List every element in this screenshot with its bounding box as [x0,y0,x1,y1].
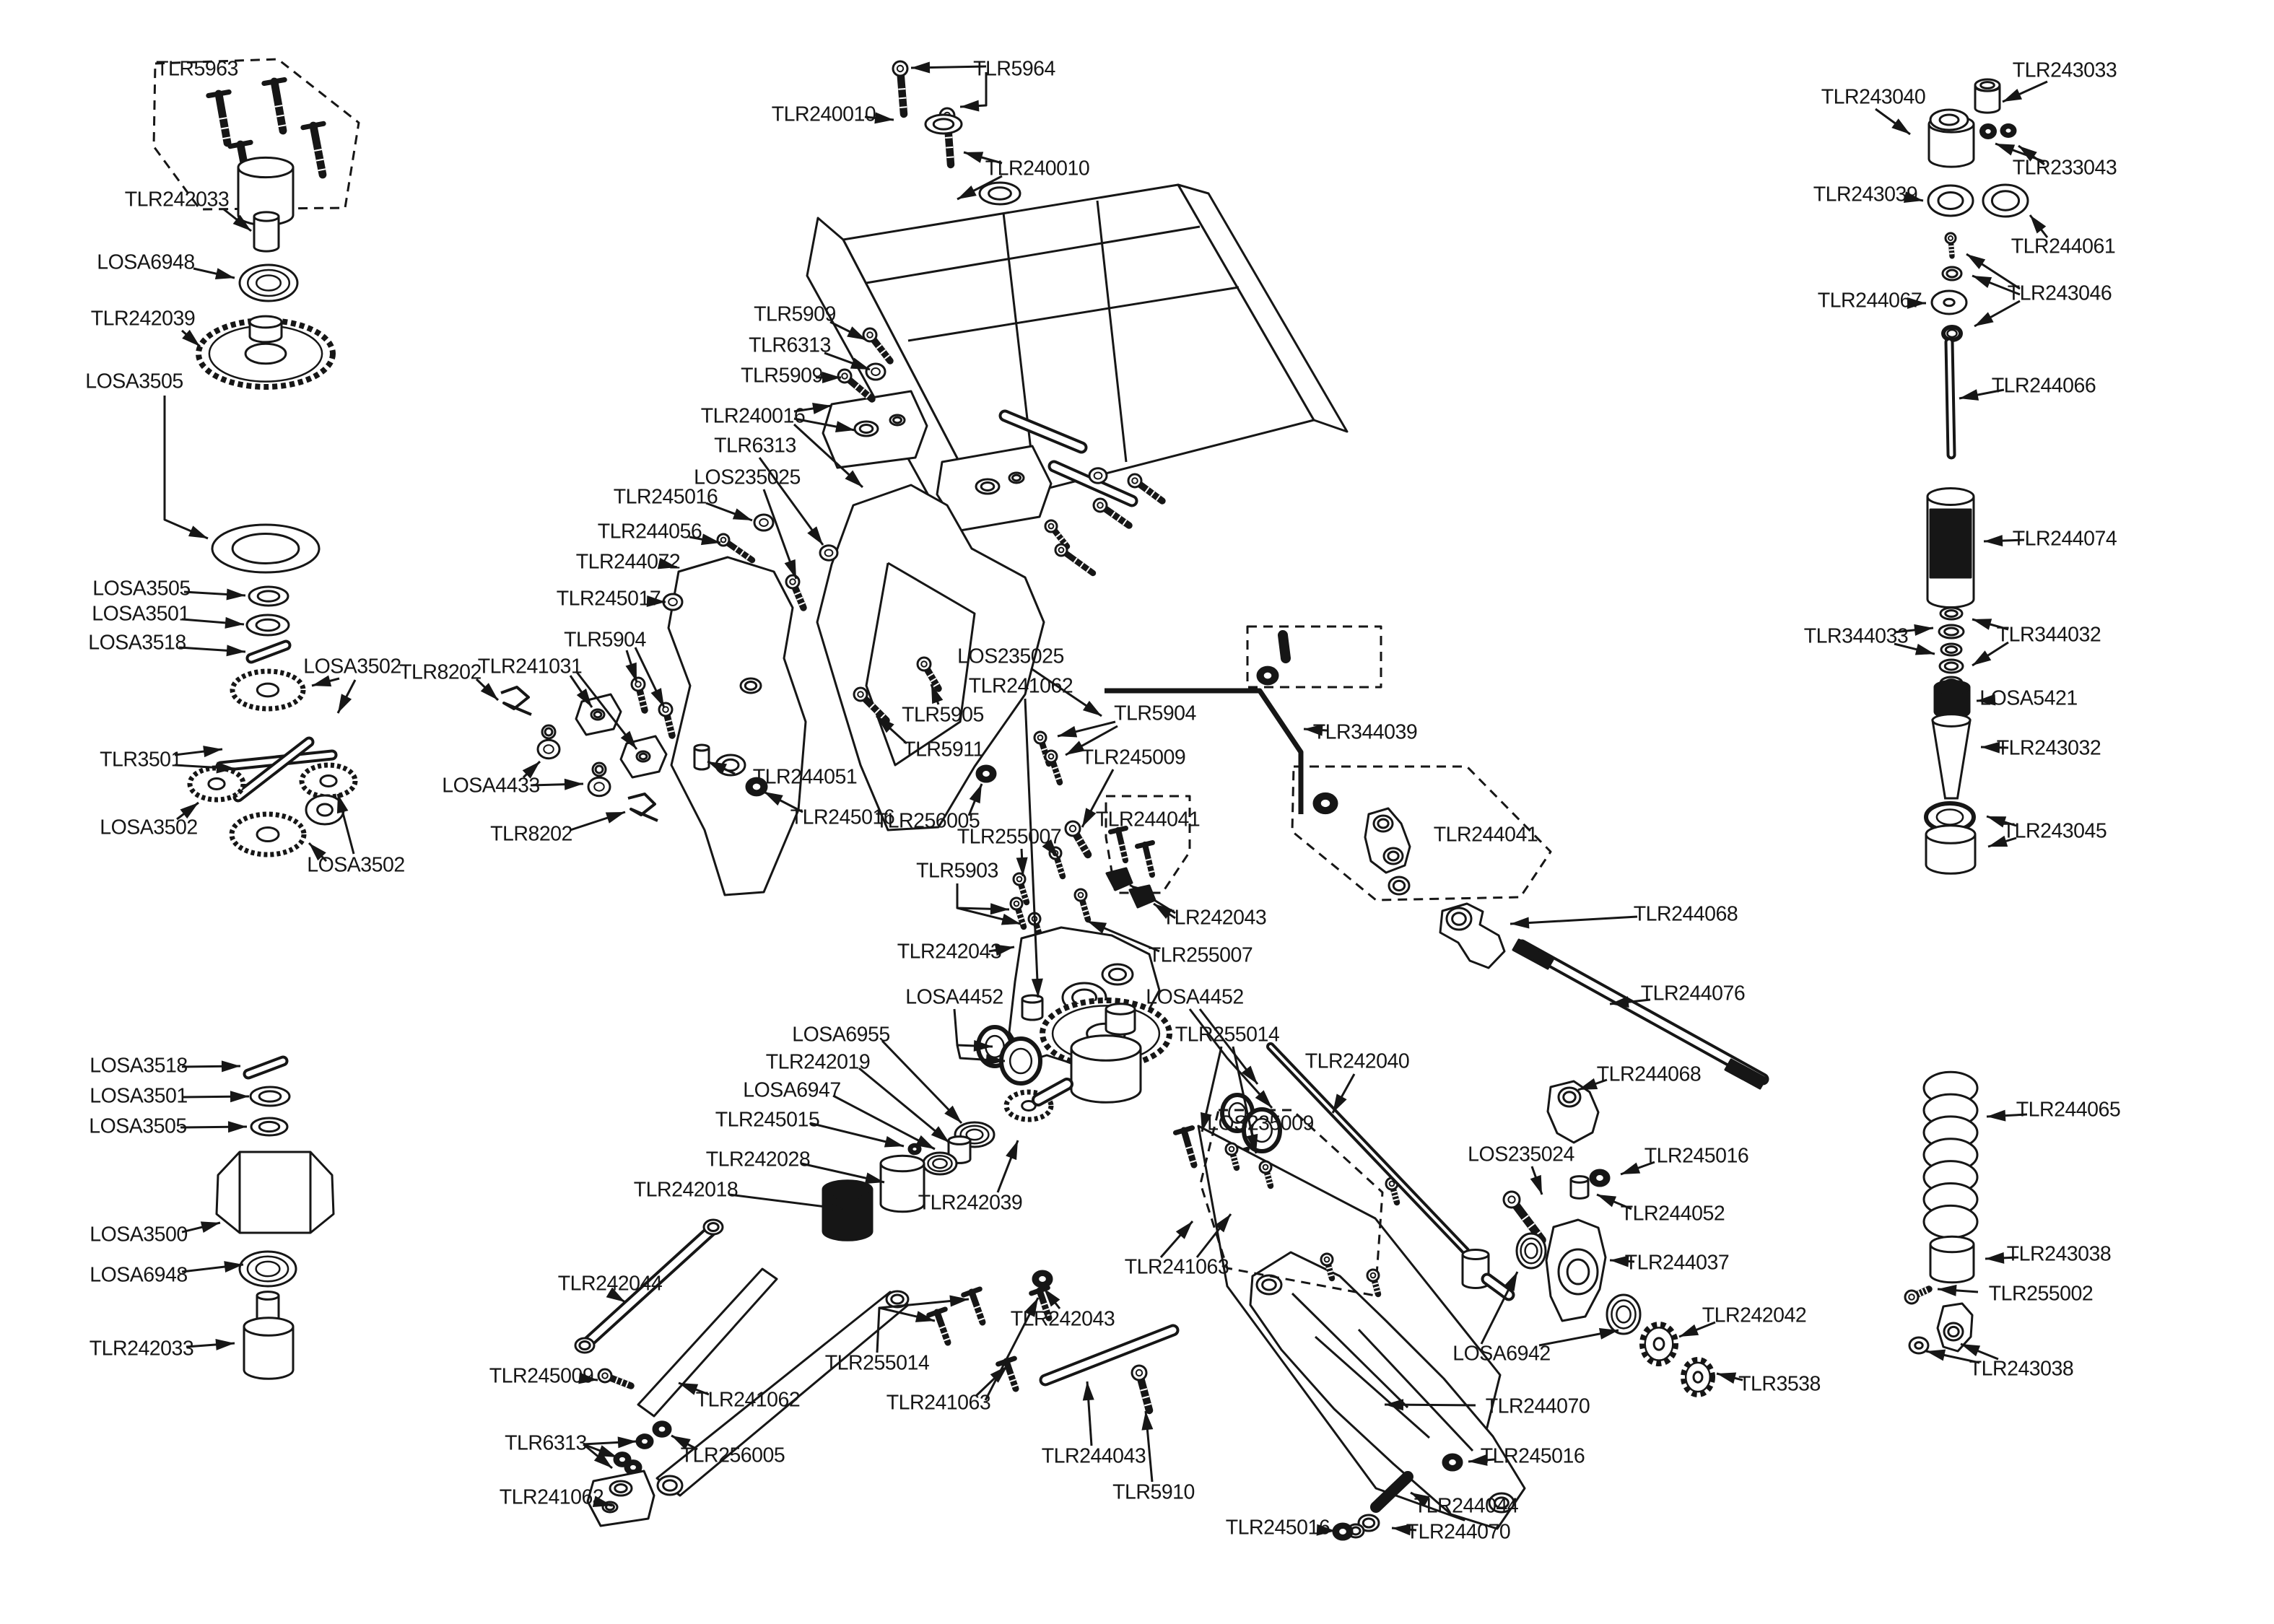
bevel-gear-bore [321,776,336,787]
flathead-screw-head [1175,1128,1192,1133]
nut-bore [871,368,880,375]
leader-arrowhead [618,1436,637,1448]
part-number-label: TLR244068 [1597,1063,1701,1086]
washer-ring-inner [1948,1327,1959,1336]
part-number-label: TLR243045 [2003,820,2107,843]
part-number-label: TLR5909 [741,364,823,388]
part-number-label: TLR344032 [1997,624,2101,647]
cylinder-top [244,1318,293,1335]
part-body [668,557,806,895]
bearing-bore [933,1159,946,1169]
washer-ring-inner [594,712,601,717]
part-number-label: TLR241063 [886,1392,990,1415]
part-number-label: TLR244070 [1486,1395,1590,1418]
leader-arrowhead [2003,89,2022,102]
leader-arrowhead [1006,1140,1018,1160]
washer-ring-inner [1945,628,1959,635]
leader-arrowhead [1530,1175,1542,1195]
leader-arrowhead [1972,619,1992,629]
cylinder-top [238,157,293,177]
washer-ring-inner [1393,881,1404,890]
washer-ring-inner [1263,1280,1276,1290]
part-number-label: LOSA6942 [1452,1343,1550,1366]
leader-arrowhead [884,1136,904,1148]
part-number-label: TLR6313 [749,334,831,357]
part-number-label: TLR242033 [90,1337,193,1361]
part-number-label: TLR244061 [2011,235,2115,258]
nut-bore [1094,472,1102,479]
part-number-label: TLR5903 [916,860,998,883]
part-number-label: TLR241031 [478,655,582,678]
bevel-gear-bore [257,684,278,697]
leader-arrowhead [1621,1163,1640,1174]
leader-arrowhead [1083,701,1102,716]
part-number-label: TLR344039 [1313,721,1417,744]
nut-bore [1338,1528,1347,1535]
washer-ring-inner [615,1485,627,1493]
cylinder-top [881,1156,924,1171]
washer-ring-inner [663,1480,677,1490]
screw-head [1045,751,1057,762]
cylinder-top [1571,1176,1588,1183]
washer-ring-inner [708,1223,718,1231]
part-number-label: TLR242040 [1305,1050,1409,1073]
part-number-label: TLR244068 [1634,903,1738,926]
part-number-label: TLR240010 [985,157,1089,180]
washer-ring-inner [232,534,299,564]
washer-ring-inner [894,417,902,423]
leader-arrowhead [1578,1078,1598,1090]
part-number-label: LOSA3518 [88,632,186,655]
leader-arrowhead [1597,1195,1616,1207]
cone-boot [1933,720,1970,798]
washer-ring-inner [580,1342,590,1350]
screw-head [1128,474,1141,487]
leader-arrowhead [807,526,823,545]
leader-arrowhead [215,268,235,279]
nut-bore [630,1464,637,1470]
screw-thread [946,147,953,148]
screw-head [1075,889,1086,901]
part-number-label: TLR8202 [490,823,572,846]
part-number-label: TLR256005 [681,1444,785,1467]
screw-head [1226,1143,1237,1155]
cylinder-top [1106,1004,1135,1014]
washer-ring-inner [860,425,873,433]
part-number-label: LOSA3501 [92,603,189,626]
part-body [1107,868,1132,890]
part-number-label: TLR245017 [557,588,661,611]
nut-bore [2005,128,2012,134]
part-number-label: LOSA3502 [100,816,197,839]
washer-ring-inner [318,804,333,816]
cylinder-top [1935,681,1969,693]
part-number-label: TLR242018 [634,1179,738,1202]
part-number-label: LOS235009 [1207,1112,1314,1135]
leader-arrowhead [2030,215,2046,233]
leader-arrowhead [957,185,977,199]
screw-head [598,1369,611,1382]
cylinder-top [254,212,279,221]
leader-arrowhead [625,663,637,682]
cylinder-top [1930,1236,1974,1252]
part-number-label: TLR242033 [125,188,229,211]
nut-bore [594,782,604,790]
part-body [501,687,531,715]
screw-head [659,703,672,716]
part-number-label: TLR244044 [1414,1495,1519,1518]
cylinder-top [1022,995,1042,1003]
leader-arrowhead [201,1221,220,1233]
part-number-label: LOSA6948 [90,1264,187,1287]
washer-ring-inner [1946,647,1956,653]
spring-coil [1924,1205,1977,1237]
cylinder-top [823,1181,872,1198]
washer-ring-inner [1452,913,1466,925]
part-number-label: TLR255007 [1149,944,1253,967]
part-number-label: TLR6313 [505,1432,587,1455]
part-number-label: TLR242039 [918,1192,1022,1215]
part-number-label: TLR245009 [1081,746,1185,769]
washer-ring-inner [1363,1519,1374,1527]
washer-ring-inner [1938,192,1963,209]
part-number-label: TLR242042 [1702,1304,1806,1327]
screw-thread [945,137,952,138]
leader-arrowhead [1717,1373,1736,1384]
part-number-label: TLR242044 [558,1272,663,1296]
screw-thread [899,98,906,99]
leader-arrowhead [651,688,664,707]
screw-thread [1948,246,1953,247]
part-number-label: TLR5911 [903,738,984,761]
washer-ring-inner [640,754,647,759]
part-number-label: LOSA3502 [303,655,401,678]
part-number-label: TLR5964 [973,58,1055,81]
part-number-label: TLR242039 [91,307,195,331]
part-number-label: LOSA3505 [89,1115,186,1138]
bearing-bore [1616,1306,1630,1323]
part-number-label: TLR5963 [156,58,238,81]
washer-ring-inner [981,483,994,491]
leader-arrowhead [1972,276,1992,288]
screw-head [786,575,799,588]
part-number-label: TLR243040 [1821,86,1925,109]
part-number-label: LOSA4433 [442,774,539,798]
leader-arrowhead [1333,1093,1347,1113]
part-number-label: TLR243039 [1813,183,1917,206]
part-number-label: TLR244052 [1621,1202,1725,1226]
washer-ring-inner [1013,475,1021,481]
screw-head [1132,1366,1146,1380]
part-number-label: TLR233043 [2013,157,2117,180]
flathead-screw-head [964,1289,980,1295]
washer-ring-inner [1944,299,1954,306]
screw-head [1055,544,1067,556]
part-number-label: LOS235025 [957,645,1064,668]
leader-line [165,396,208,538]
part-number-label: TLR244065 [2016,1099,2120,1122]
cylinder-top [1926,826,1975,843]
screw-head [718,534,729,546]
cone-top [1933,715,1970,727]
cylinder-top [1463,1250,1489,1260]
leader-line [1510,917,1637,924]
washer-ring-inner [545,728,552,735]
part-number-label: LOSA6947 [743,1079,840,1102]
part-number-label: TLR242043 [1162,907,1266,930]
part-number-label: TLR5904 [1114,702,1196,725]
leader-arrowhead [1082,808,1096,827]
cylinder-top [257,1292,279,1300]
washer-ring-inner [745,682,756,690]
part-number-label: TLR245016 [1644,1145,1748,1168]
leader-arrowhead [1974,312,1994,326]
pin-fill [1949,342,1951,455]
bevel-gear-bore [209,779,225,790]
nut-bore [1320,799,1330,808]
part-number-label: LOSA3505 [92,577,190,601]
part-number-label: TLR243033 [2013,59,2117,82]
part-number-label: TLR244037 [1625,1252,1729,1275]
screw-head [1504,1192,1520,1208]
leader-arrowhead [1987,1110,2005,1122]
bevel-gear-bore [257,827,279,841]
leader-arrowhead [1058,726,1077,738]
leader-arrowhead [230,1091,249,1102]
washer-ring-inner [1915,1343,1922,1349]
part-body [1930,510,1971,577]
bearing-bore [1525,1244,1538,1258]
screw-head [918,658,931,671]
exploded-parts-diagram: TLR5963TLR242033LOSA6948TLR242039LOSA350… [0,0,2274,1624]
part-number-label: TLR244072 [576,551,680,574]
part-number-label: TLR245015 [715,1109,819,1132]
nut-bore [544,745,554,753]
washer-ring-inner [1981,82,1995,89]
nut-bore [1448,1459,1457,1466]
part-number-label: TLR245016 [614,486,718,509]
part-number-label: LOSA6955 [792,1023,889,1047]
part-number-label: TLR243046 [2008,282,2112,305]
part-number-label: TLR3538 [1738,1373,1821,1396]
leader-arrowhead [949,1296,969,1307]
pin-outline [1283,635,1286,658]
leader-arrowhead [338,694,352,713]
part-number-label: TLR255002 [1989,1283,2093,1306]
gear-hub [1654,1338,1664,1350]
o-ring [1001,1039,1040,1083]
screw-head [1094,499,1107,512]
screw-thread [1949,250,1954,250]
washer-ring-inner [989,188,1011,200]
part-number-label: TLR242043 [1011,1308,1115,1331]
leader-arrowhead [1141,1411,1153,1431]
flathead-screw-head [1137,842,1152,846]
part-number-label: TLR244041 [1096,808,1200,831]
part-number-label: TLR241062 [969,675,1073,698]
part-number-label: TLR243038 [1969,1358,2073,1381]
part-number-label: TLR5910 [1112,1481,1195,1504]
screw-thread [1949,253,1954,254]
screw-head [1367,1270,1379,1281]
part-number-label: TLR245009 [489,1365,593,1388]
cylinder-top [250,316,282,328]
part-number-label: LOSA3518 [90,1055,187,1078]
screw-thread [899,107,907,108]
part-number-label: TLR255007 [957,826,1061,849]
cylinder-top [694,745,709,751]
washer-ring-inner [1940,115,1959,125]
washer-ring-inner [1567,1260,1589,1284]
screw-thread [946,157,954,157]
leader-arrowhead [225,617,244,629]
washer-ring-inner [933,119,954,129]
nut-bore [825,549,833,556]
part-number-label: TLR242019 [766,1051,870,1074]
exploded-parts-diagram-page: TLR5963TLR242033LOSA6948TLR242039LOSA350… [0,0,2274,1624]
cylinder-top [1071,1036,1141,1061]
o-ring [1943,327,1961,340]
nut-bore [982,770,990,777]
leader-arrowhead [1926,1350,1946,1361]
washer-ring-inner [259,1091,281,1101]
leader-arrowhead [203,746,222,757]
part-number-label: TLR245016 [1226,1516,1330,1540]
flathead-screw-head [264,79,284,83]
leader-arrowhead [970,784,982,803]
screw-head [893,61,907,76]
leader-arrowhead [874,112,894,123]
leader-arrowhead [1915,644,1935,655]
screw-head [838,370,851,383]
washer-ring-inner [1947,270,1957,277]
screw-head [1045,520,1057,532]
part-number-label: TLR241063 [1125,1256,1229,1279]
part-number-label: TLR244056 [598,520,702,543]
washer-ring-inner [259,1122,279,1131]
part-number-label: TLR6313 [714,435,796,458]
part-number-label: TLR243038 [2007,1243,2111,1266]
leader-arrowhead [565,779,583,790]
screw-head [1011,898,1022,909]
leader-arrowhead [911,62,930,74]
leader-arrowhead [964,152,983,162]
nut-bore [641,1439,648,1444]
bearing-bore [256,276,281,291]
nut-bore [912,1147,917,1151]
screw-head [1321,1254,1333,1265]
part-number-label: TLR244043 [1042,1445,1146,1468]
part-number-label: LOSA4452 [905,986,1003,1009]
part-number-label: LOSA4452 [1146,986,1243,1009]
part-number-label: TLR5909 [754,303,836,326]
part-number-label: TLR5905 [902,704,984,727]
washer-ring-inner [1109,969,1125,979]
leader-arrowhead [1914,624,1933,636]
leader-arrowhead [215,1339,235,1350]
nut-bore [668,598,677,606]
part-number-label: TLR244051 [753,766,857,789]
part-number-label: LOSA5421 [1979,687,2077,710]
part-number-label: TLR244066 [1992,375,2096,398]
nut-bore [759,519,768,526]
nut-bore [658,1426,666,1432]
part-number-label: TLR241062 [500,1486,604,1509]
part-number-label: TLR242028 [706,1148,810,1171]
gear-hub [245,344,286,364]
bearing-bore [256,1262,280,1276]
flathead-screw-head [230,142,251,146]
leader-arrowhead [1961,1344,1980,1356]
washer-ring-inner [1378,819,1388,828]
part-body [1513,940,1554,969]
part-number-label: LOSA3502 [307,854,404,877]
part-number-label: LOSA6948 [97,251,194,274]
part-number-label: TLR240010 [772,103,876,126]
washer-ring-inner [256,619,279,630]
leader-arrowhead [1985,1252,2004,1264]
part-number-label: LOSA3500 [90,1223,187,1247]
washer-ring-inner [596,766,603,773]
pin-fill [238,742,309,797]
part-number-label: TLR240016 [701,405,805,428]
screw-head [854,688,867,701]
part-number-label: LOSA3505 [85,370,183,393]
part-number-label: TLR255014 [1175,1023,1280,1047]
leader-arrowhead [1984,535,2003,546]
washer-ring-inner [1992,191,2018,210]
part-number-label: TLR244041 [1434,824,1538,847]
leader-arrowhead [606,812,625,824]
part-number-label: LOS235024 [1468,1143,1574,1166]
part-number-label: TLR8202 [399,661,482,684]
pin-fill [1045,1330,1173,1380]
part-number-label: TLR244074 [2013,528,2117,551]
leader-arrowhead [1938,1285,1957,1296]
leader-line [957,883,1009,909]
part-number-label: TLR245016 [1481,1445,1585,1468]
part-number-label: TLR243032 [1997,737,2101,760]
part-number-label: TLR344033 [1804,625,1908,648]
nut-bore [1595,1174,1604,1182]
part-number-label: TLR244067 [1818,289,1922,313]
part-number-label: TLR244070 [1406,1521,1510,1544]
nut-bore [1263,672,1273,680]
leader-arrowhead [188,525,208,538]
leader-arrowhead [733,508,752,520]
part-body [628,794,658,821]
washer-ring-inner [1946,611,1958,617]
nut-bore [619,1457,626,1462]
part-body [217,1152,334,1233]
part-number-label: TLR244076 [1641,982,1745,1005]
washer-ring-inner [1945,663,1958,670]
washer-ring-inner [258,591,279,601]
flathead-screw-head [929,1309,946,1315]
screw-head [1034,732,1046,743]
screw-head [1905,1291,1918,1304]
leader-arrowhead [990,903,1009,914]
part-number-label: TLR5904 [564,629,646,652]
washer-ring-inner [892,1295,904,1304]
leader-arrowhead [1679,1324,1699,1337]
washer-ring-inner [1564,1092,1576,1102]
part-number-label: TLR3501 [100,748,182,772]
screw-head [1260,1161,1271,1173]
flathead-screw-head [209,92,229,95]
part-number-label: TLR241062 [696,1389,800,1412]
washer-ring-inner [1388,852,1398,860]
